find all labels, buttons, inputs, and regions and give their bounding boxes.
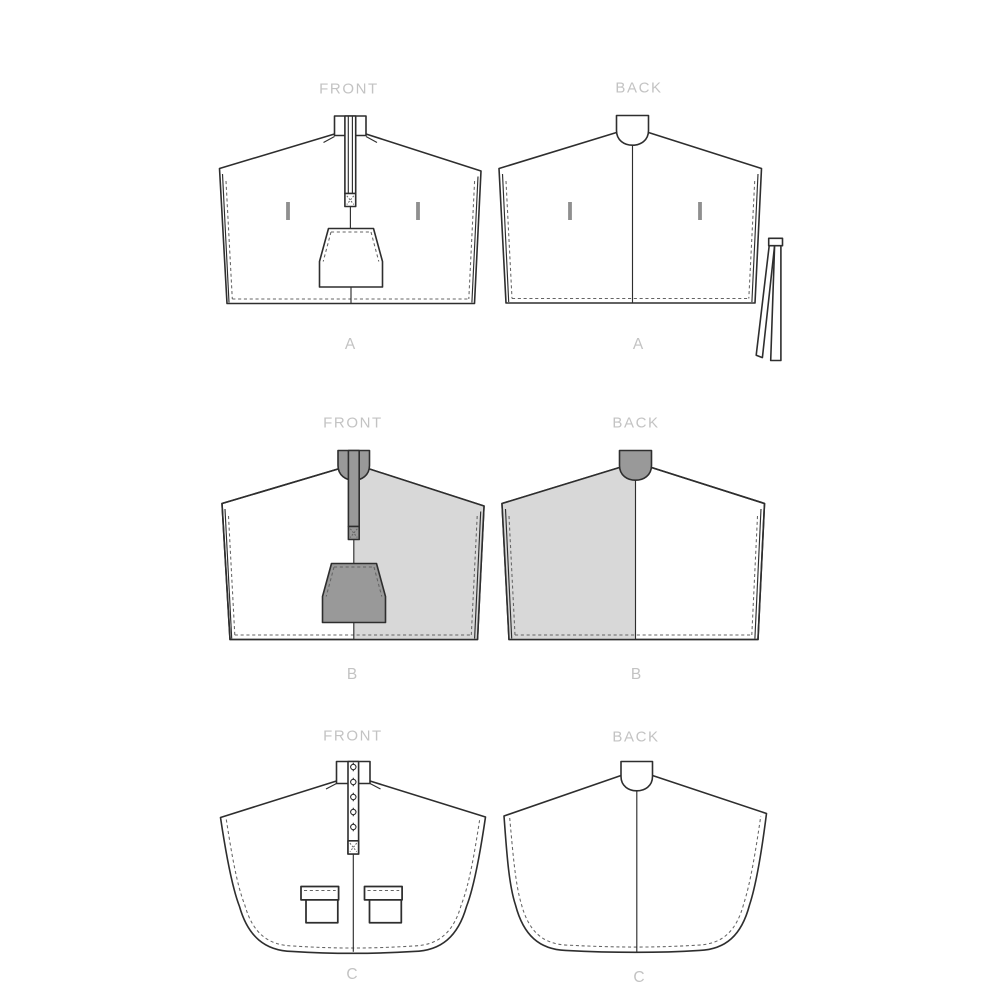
drawing-view-b-back xyxy=(490,443,790,655)
button xyxy=(351,809,356,814)
zipper-placket xyxy=(348,451,359,527)
view-letter-b-front: B xyxy=(347,666,357,684)
contrast-half-left xyxy=(502,468,636,640)
button xyxy=(351,779,356,784)
pocket-right xyxy=(365,887,403,923)
cape-body xyxy=(499,133,762,304)
zipper-placket xyxy=(345,116,356,194)
pocket-flap-left xyxy=(301,887,339,900)
view-letter-c-back: C xyxy=(633,969,644,987)
drawing-view-c-front xyxy=(210,752,500,967)
orientation-label-a-back: BACK xyxy=(615,80,662,97)
stuff-pouch xyxy=(323,564,386,623)
pocket-body-right xyxy=(370,900,402,923)
drawing-view-a-back xyxy=(490,108,810,378)
pocket-body-left xyxy=(306,900,338,923)
cape-a-back xyxy=(499,116,783,361)
bar-tack-box xyxy=(348,527,359,540)
tie-strap xyxy=(756,238,782,360)
drawing-view-c-back xyxy=(495,752,785,967)
stand-collar xyxy=(617,116,649,146)
button xyxy=(351,764,356,769)
stand-collar xyxy=(621,762,653,791)
pattern-line-art-sheet: FRONT BACK xyxy=(0,0,1000,1000)
button xyxy=(351,824,356,829)
orientation-label-b-back: BACK xyxy=(612,415,659,432)
cape-body xyxy=(504,776,767,953)
button xyxy=(351,794,356,799)
orientation-label-c-back: BACK xyxy=(612,728,659,745)
bar-tack-box xyxy=(348,841,359,854)
stuff-pouch xyxy=(320,229,383,288)
cape-b-front xyxy=(222,451,484,640)
orientation-label-c-front: FRONT xyxy=(323,728,383,745)
cape-c-back xyxy=(504,762,767,953)
bar-tack-box xyxy=(345,194,356,207)
cape-a-front xyxy=(220,116,482,304)
tie-strap-fold-cap xyxy=(769,238,783,245)
view-letter-a-front: A xyxy=(345,336,355,354)
drawing-view-a-front xyxy=(200,108,500,320)
pocket-left xyxy=(301,887,339,923)
drawing-view-b-front xyxy=(200,443,500,655)
cape-b-back xyxy=(502,451,765,640)
orientation-label-a-front: FRONT xyxy=(319,81,379,98)
cape-c-front xyxy=(221,762,486,954)
orientation-label-b-front: FRONT xyxy=(323,415,383,432)
pocket-flap-right xyxy=(365,887,403,900)
stand-collar xyxy=(620,451,652,481)
view-letter-a-back: A xyxy=(633,336,643,354)
view-letter-c-front: C xyxy=(346,966,357,984)
view-letter-b-back: B xyxy=(631,666,641,684)
